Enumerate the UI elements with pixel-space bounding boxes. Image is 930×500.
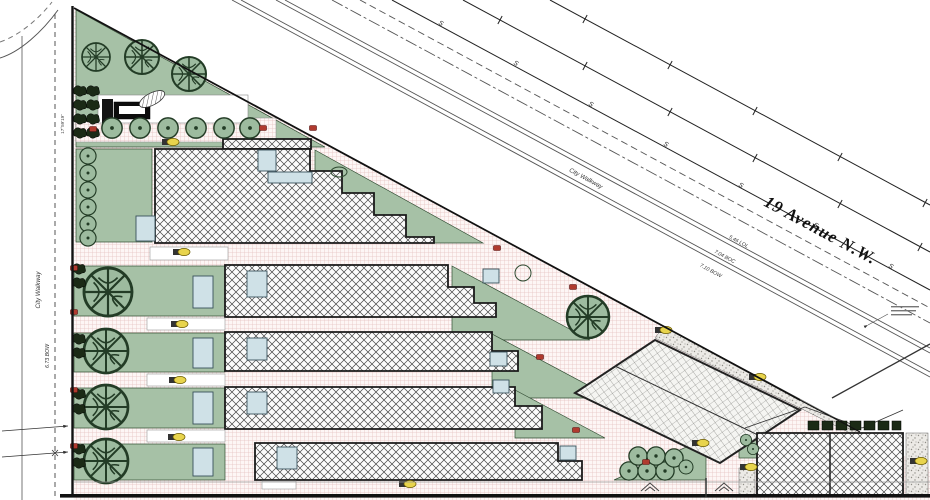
- patio: [193, 392, 213, 424]
- shrub-icon: [186, 118, 206, 138]
- shrub-icon: [214, 118, 234, 138]
- s-marker: S: [737, 182, 745, 191]
- tree-icon: [84, 268, 132, 316]
- tree-icon: [84, 329, 128, 373]
- patio: [193, 338, 213, 368]
- marker-icon: [90, 127, 97, 132]
- corner-curve: [0, 10, 58, 58]
- site-plan-page: 19 Avenue N.W. City Walkway City Walkway…: [0, 0, 930, 500]
- shrub-icon: [80, 182, 96, 198]
- entry-walk: [147, 430, 225, 442]
- planter-box: [822, 421, 833, 430]
- lamp-icon: [162, 138, 179, 145]
- shrub-icon: [102, 118, 122, 138]
- lamp-icon: [171, 320, 188, 327]
- tree-icon: [84, 385, 128, 429]
- building-row1-step: [223, 139, 311, 149]
- shrub-icon: [158, 118, 178, 138]
- lamp-icon: [399, 480, 416, 487]
- shrub-icon: [80, 148, 96, 164]
- entry-porch: [247, 271, 267, 297]
- gravel-column-right: [906, 433, 928, 496]
- street-label: 19 Avenue N.W.: [761, 192, 880, 268]
- tree-icon: [84, 439, 128, 483]
- stoop: [483, 269, 499, 283]
- building-row5: [255, 443, 582, 480]
- marker-icon: [310, 126, 317, 131]
- s-marker: S: [662, 141, 670, 150]
- leader-arrow: [2, 452, 68, 457]
- leader-arrow: [2, 426, 68, 431]
- tree-icon: [82, 43, 110, 71]
- bearing-dimension-label: 17°59'19": [60, 114, 65, 134]
- shrub-icon: [80, 199, 96, 215]
- s-marker: S: [437, 20, 445, 29]
- planter-box: [878, 421, 889, 430]
- marker-icon: [573, 428, 580, 433]
- shrub-icon: [240, 118, 260, 138]
- shrub-icon: [679, 460, 693, 474]
- s-marker: S: [587, 101, 595, 110]
- shrub-icon: [747, 443, 758, 454]
- offset-label-1: 5.46 LOL: [728, 234, 750, 249]
- patio: [258, 150, 276, 171]
- marker-icon: [570, 285, 577, 290]
- entry-porch: [277, 447, 297, 469]
- site-plan-drawing: 19 Avenue N.W. City Walkway City Walkway…: [0, 0, 930, 500]
- patio: [268, 172, 312, 183]
- marker-icon: [260, 126, 267, 131]
- tree-icon: [172, 57, 206, 91]
- entry-porch: [247, 338, 267, 360]
- s-marker: S: [887, 263, 895, 272]
- marker-icon: [494, 246, 501, 251]
- planter-box: [864, 421, 875, 430]
- s-marker: S: [512, 60, 520, 69]
- tree-icon: [567, 296, 609, 338]
- city-walkway-left-label: City Walkway: [35, 271, 42, 309]
- marker-icon: [537, 355, 544, 360]
- entry-porch: [247, 392, 267, 414]
- gravel-column-left: [739, 468, 755, 497]
- planter-box: [892, 421, 901, 430]
- shrub-icon: [80, 165, 96, 181]
- planter-box: [808, 421, 819, 430]
- annotation-text-lines: [891, 306, 919, 315]
- fence-return-line: [832, 344, 930, 398]
- building-row3: [225, 332, 518, 371]
- stoop: [493, 380, 509, 393]
- stoop: [490, 352, 507, 366]
- lamp-icon: [692, 439, 709, 446]
- lamp-icon: [173, 248, 190, 255]
- stoop: [560, 446, 576, 460]
- patio: [193, 448, 213, 476]
- marker-icon: [643, 460, 650, 465]
- bow-dimension-label: 6.73 BOW: [45, 343, 51, 368]
- planter-box: [850, 421, 861, 430]
- patio: [193, 276, 213, 308]
- survey-tick-line: [463, 0, 930, 252]
- patio: [136, 216, 155, 241]
- survey-tick-line: [550, 0, 930, 205]
- lamp-icon: [168, 433, 185, 440]
- offset-label-3: 7.10 BOW: [699, 263, 724, 280]
- drawing-border-bottom: [60, 494, 930, 498]
- lamp-icon: [169, 376, 186, 383]
- shrub-icon: [80, 230, 96, 246]
- lamp-icon: [910, 457, 927, 464]
- lamp-icon: [740, 463, 757, 470]
- shrub-icon: [130, 118, 150, 138]
- corner-curve-dashed: [0, 2, 52, 42]
